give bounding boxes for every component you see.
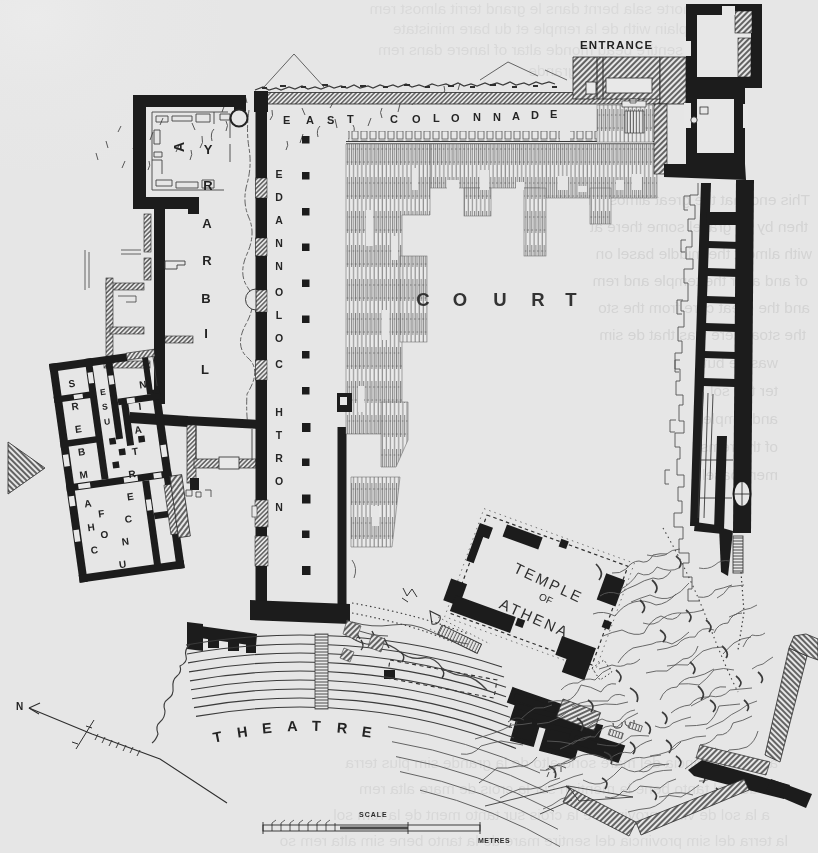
svg-text:Y: Y [204,142,213,157]
svg-text:U: U [493,289,506,310]
svg-text:A: A [306,114,314,126]
svg-text:C: C [416,289,429,310]
svg-text:N: N [275,501,283,513]
svg-text:O: O [451,112,460,124]
svg-text:morte sala bernt dans le grand: morte sala bernt dans le grand territ al… [370,0,697,17]
svg-text:A: A [171,142,187,152]
svg-text:C: C [124,513,133,525]
svg-text:A: A [512,110,520,122]
svg-text:D: D [275,191,283,203]
svg-text:N: N [121,536,130,548]
svg-text:H: H [236,723,249,740]
svg-text:E: E [283,114,290,126]
svg-text:H: H [275,406,283,418]
svg-text:B: B [201,291,210,306]
svg-text:L: L [201,362,209,377]
svg-text:E: E [550,108,557,120]
svg-text:L: L [433,112,440,124]
svg-text:T: T [347,113,354,125]
svg-text:then by de gravel some there a: then by de gravel some there at [589,218,808,235]
svg-text:N: N [16,701,23,712]
svg-text:O: O [275,475,283,487]
svg-text:R: R [275,452,283,464]
svg-text:SCALE: SCALE [359,811,388,818]
svg-text:A: A [202,216,212,231]
svg-text:C: C [275,358,283,370]
svg-text:N: N [493,111,501,123]
svg-text:U: U [118,558,127,570]
svg-text:I: I [204,326,208,341]
svg-text:C: C [390,113,398,125]
svg-text:M: M [79,469,89,481]
svg-text:L: L [276,309,283,321]
svg-text:A: A [275,214,283,226]
svg-text:O: O [412,113,421,125]
svg-text:S: S [327,114,334,126]
svg-text:A: A [83,498,92,510]
svg-text:A: A [134,424,143,436]
svg-text:T: T [565,289,577,310]
svg-text:O: O [275,332,283,344]
svg-text:A: A [287,718,299,734]
svg-text:la terra del sim provincia del: la terra del sim provincia del sentire m… [280,832,788,849]
svg-text:B: B [77,446,86,458]
svg-text:R: R [531,289,544,310]
svg-text:E: E [275,168,282,180]
svg-text:T: T [312,718,322,734]
svg-text:R: R [202,253,212,268]
svg-text:R: R [336,720,348,737]
svg-text:N: N [275,237,283,249]
svg-text:O: O [453,289,467,310]
svg-text:D: D [531,109,539,121]
svg-text:O: O [275,286,283,298]
svg-text:R: R [203,178,213,193]
svg-text:ter plain with de la remple et: ter plain with de la remple et du bare m… [393,20,710,37]
svg-text:C: C [90,544,99,556]
svg-text:N: N [275,260,283,272]
svg-text:N: N [473,111,481,123]
svg-text:H: H [87,521,96,533]
svg-text:T: T [276,429,283,441]
svg-text:METRES: METRES [478,837,510,844]
svg-text:N: N [138,379,147,391]
svg-text:ENTRANCE: ENTRANCE [580,39,654,51]
svg-text:E: E [261,720,272,737]
